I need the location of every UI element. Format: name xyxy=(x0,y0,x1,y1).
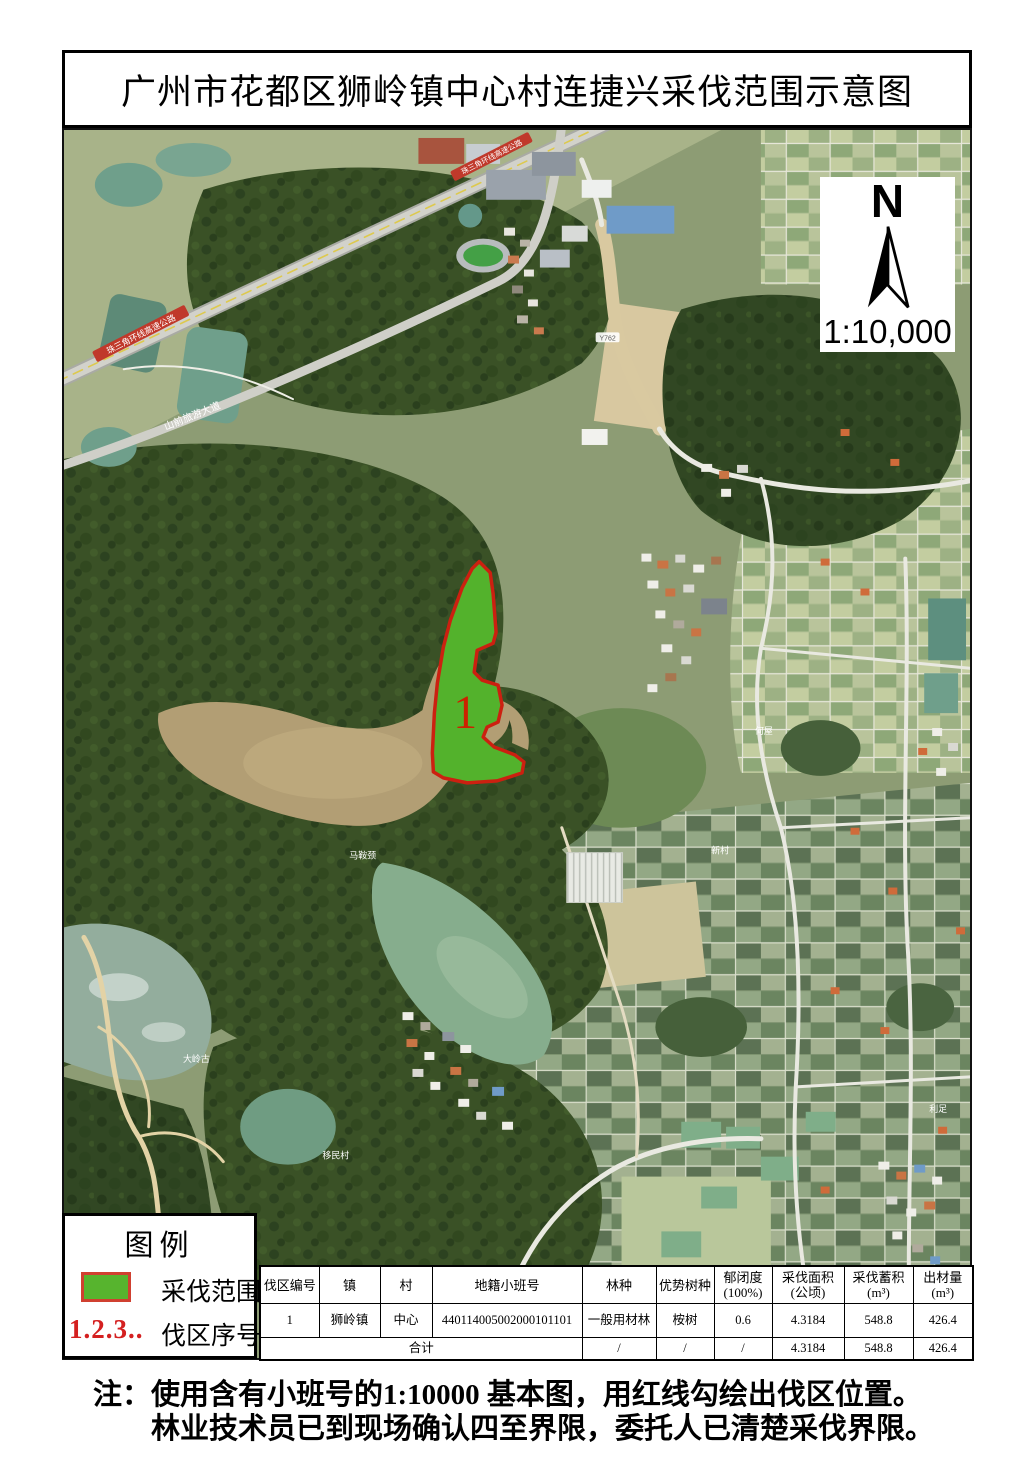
label-xincun: 新村 xyxy=(711,845,729,856)
cell-output: 426.4 xyxy=(913,1304,973,1338)
label-hewu: 何屋 xyxy=(755,725,773,736)
page-title: 广州市花都区狮岭镇中心村连捷兴采伐范围示意图 xyxy=(121,64,913,115)
label-maanjing: 马鞍颈 xyxy=(349,850,376,861)
cell-no: 1 xyxy=(260,1304,319,1338)
total-volume: 548.8 xyxy=(844,1338,913,1361)
col-header: 采伐蓄积(m³) xyxy=(844,1266,913,1304)
label-dalinggu: 大岭古 xyxy=(183,1053,210,1064)
col-header: 采伐面积(公顷) xyxy=(772,1266,844,1304)
cloud-reflection xyxy=(142,1022,186,1042)
north-arrow-icon xyxy=(860,223,916,311)
title-box: 广州市花都区狮岭镇中心村连捷兴采伐范围示意图 xyxy=(62,50,972,128)
stadium xyxy=(456,239,510,273)
pond xyxy=(156,143,232,177)
north-label: N xyxy=(871,177,904,225)
pond-rightedge xyxy=(928,598,966,660)
col-header: 出材量(m³) xyxy=(913,1266,973,1304)
grove-2 xyxy=(655,997,747,1057)
cell-area: 4.3184 xyxy=(772,1304,844,1338)
greenhouses xyxy=(567,853,623,903)
col-header: 优势树种 xyxy=(656,1266,714,1304)
cell-canopy: 0.6 xyxy=(714,1304,772,1338)
table-data-row: 1 狮岭镇 中心 440114005002000101101 一般用材林 桉树 … xyxy=(260,1304,973,1338)
footnote-line1: 注：使用含有小班号的1:10000 基本图，用红线勾绘出伐区位置。 xyxy=(93,1378,934,1412)
total-species: / xyxy=(656,1338,714,1361)
col-header: 伐区编号 xyxy=(260,1266,319,1304)
total-canopy: / xyxy=(714,1338,772,1361)
cut-area-legend-label: 采伐范围 xyxy=(161,1272,261,1308)
cell-town: 狮岭镇 xyxy=(319,1304,380,1338)
col-header: 村 xyxy=(380,1266,432,1304)
cell-parcel: 440114005002000101101 xyxy=(432,1304,582,1338)
road-code-label: Y762 xyxy=(596,332,620,342)
table-header-row: 伐区编号 镇 村 地籍小班号 林种 优势树种 郁闭度(100%) 采伐面积(公顷… xyxy=(260,1266,973,1304)
cell-volume: 548.8 xyxy=(844,1304,913,1338)
total-forest-type: / xyxy=(582,1338,656,1361)
label-lizu: 利足 xyxy=(929,1103,947,1114)
pond xyxy=(95,163,163,207)
pond-rightedge xyxy=(924,673,958,713)
map-document-page: 广州市花都区狮岭镇中心村连捷兴采伐范围示意图 xyxy=(0,0,1034,1461)
footnote: 注：使用含有小班号的1:10000 基本图，用红线勾绘出伐区位置。 林业技术员已… xyxy=(93,1378,934,1446)
cut-area-swatch xyxy=(81,1272,131,1302)
table-total-row: 合计 / / / 4.3184 548.8 426.4 xyxy=(260,1338,973,1361)
legend-title: 图例 xyxy=(65,1222,254,1264)
footnote-line2: 林业技术员已到现场确认四至界限，委托人已清楚采伐界限。 xyxy=(151,1412,934,1446)
cell-forest-type: 一般用材林 xyxy=(582,1304,656,1338)
grove-1 xyxy=(781,720,861,776)
seq-symbol: 1.2.3.. xyxy=(69,1314,144,1345)
cutting-data-table: 伐区编号 镇 村 地籍小班号 林种 优势树种 郁闭度(100%) 采伐面积(公顷… xyxy=(259,1265,974,1361)
legend-row-area: 采伐范围 xyxy=(65,1264,254,1308)
col-header: 镇 xyxy=(319,1266,380,1304)
seq-legend-label: 伐区序号 xyxy=(161,1316,261,1352)
round-pond xyxy=(458,204,482,228)
reservoir-shallow xyxy=(243,727,422,799)
cell-village: 中心 xyxy=(380,1304,432,1338)
label-yimincun: 移民村 xyxy=(322,1150,349,1161)
legend-box: 图例 采伐范围 1.2.3.. 伐区序号 xyxy=(62,1213,257,1359)
north-scale-box: N 1:10,000 xyxy=(820,177,955,352)
total-area: 4.3184 xyxy=(772,1338,844,1361)
cell-species: 桉树 xyxy=(656,1304,714,1338)
total-output: 426.4 xyxy=(913,1338,973,1361)
col-header: 林种 xyxy=(582,1266,656,1304)
grove-3 xyxy=(886,983,954,1031)
total-label: 合计 xyxy=(260,1338,582,1361)
svg-text:Y762: Y762 xyxy=(599,335,615,342)
col-header: 地籍小班号 xyxy=(432,1266,582,1304)
legend-row-seq: 1.2.3.. 伐区序号 xyxy=(65,1308,254,1352)
cut-area-number: 1 xyxy=(453,686,477,739)
col-header: 郁闭度(100%) xyxy=(714,1266,772,1304)
scale-label: 1:10,000 xyxy=(823,313,951,351)
